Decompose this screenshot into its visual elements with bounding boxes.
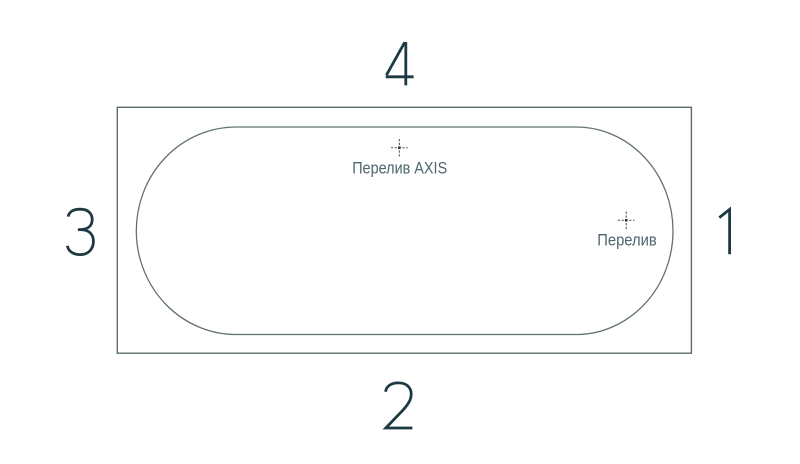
svg-text:Перелив AXIS: Перелив AXIS xyxy=(352,160,447,178)
svg-text:Перелив: Перелив xyxy=(597,232,657,250)
